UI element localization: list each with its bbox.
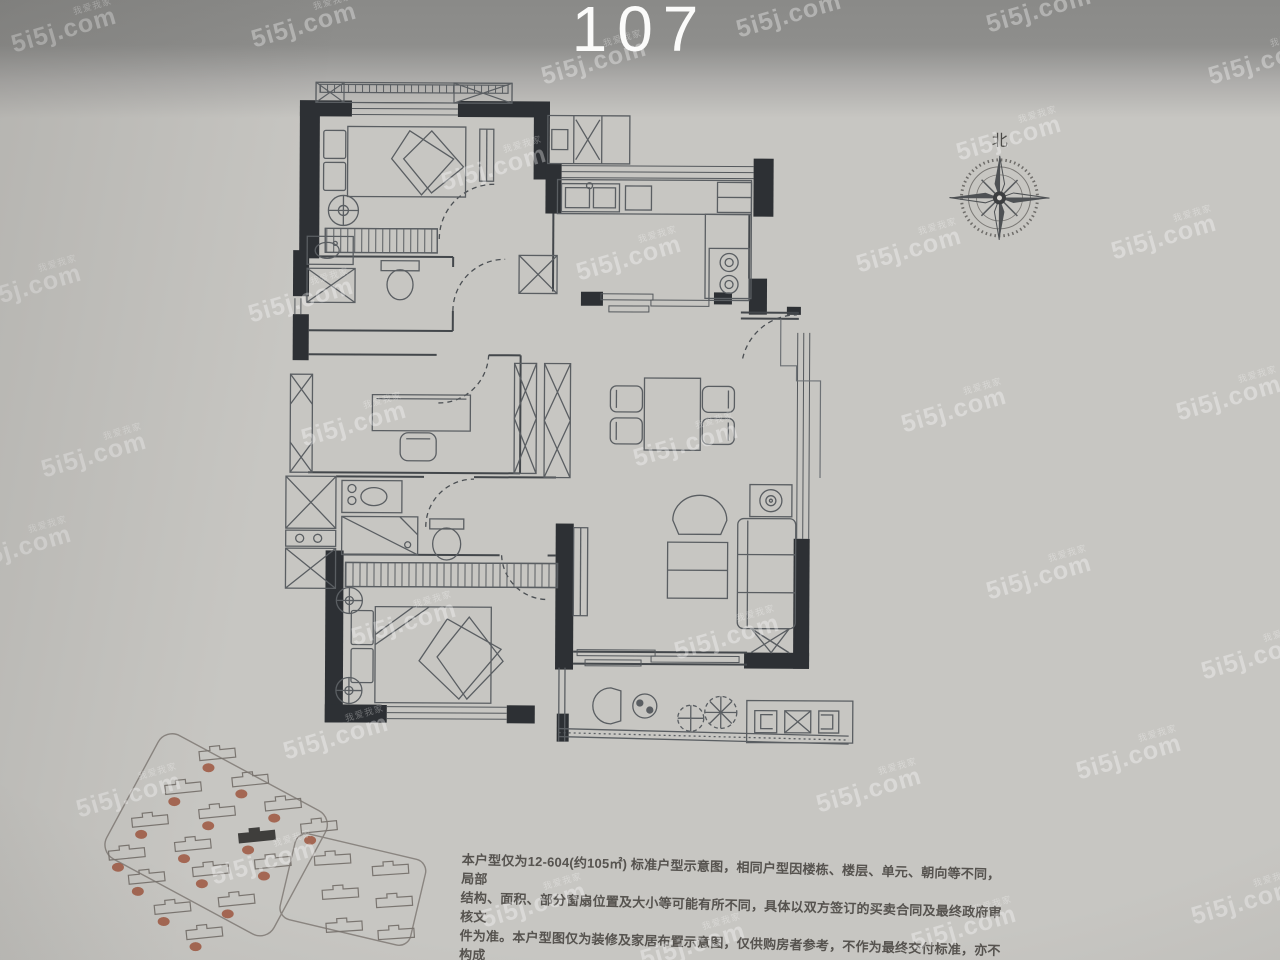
master-bedroom <box>336 562 558 704</box>
unit-plan <box>285 82 856 744</box>
highlighted-building <box>238 826 275 843</box>
site-parcel-large <box>99 728 333 941</box>
door-arcs <box>425 184 797 601</box>
floorplan-drawing: 北 <box>0 0 1280 960</box>
entry-door-arc <box>743 315 797 359</box>
balcony-south <box>559 668 853 745</box>
north-label: 北 <box>992 132 1008 150</box>
bedroom-north <box>323 126 494 253</box>
site-buildings <box>108 743 416 940</box>
study-room <box>290 362 571 477</box>
sliding-doors <box>577 294 741 667</box>
site-plan <box>99 728 429 953</box>
compass: 北 <box>949 132 1050 241</box>
living-area <box>573 484 796 653</box>
exterior-contour <box>780 319 821 478</box>
disclaimer-text: 本户型仅为12-604(约105㎡) 标准户型示意图，相同户型因楼栋、楼层、单元… <box>457 850 1007 960</box>
dining-area <box>610 378 734 451</box>
master-bathroom <box>342 480 464 560</box>
partitions <box>307 212 799 665</box>
balcony-north <box>316 82 512 103</box>
floorplan-photo: 107 <box>0 0 1280 960</box>
compass-rose-icon <box>949 156 1049 241</box>
